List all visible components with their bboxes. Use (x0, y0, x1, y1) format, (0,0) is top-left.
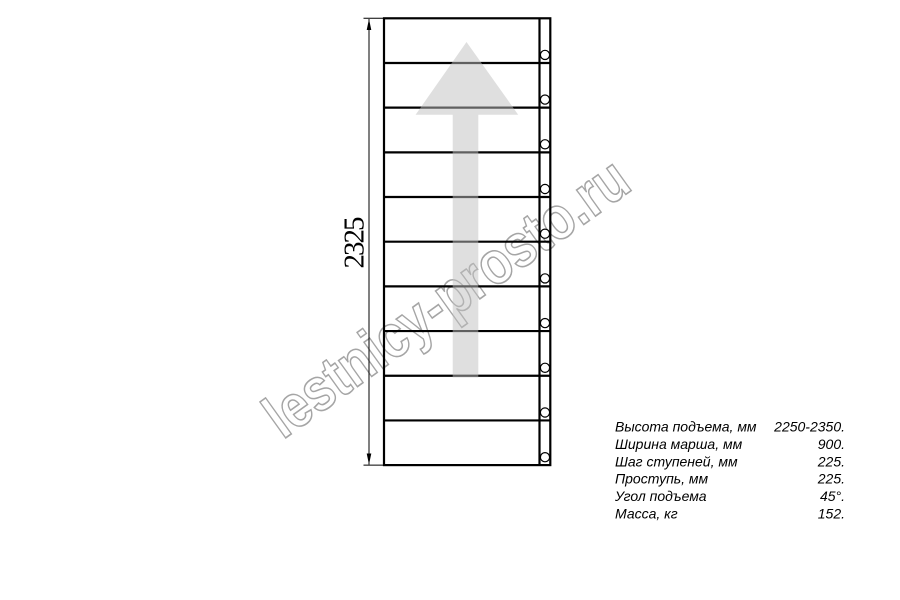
svg-text:225.: 225. (817, 453, 845, 469)
svg-text:900.: 900. (818, 436, 845, 452)
svg-text:Ширина марша, мм: Ширина марша, мм (615, 436, 743, 452)
svg-text:Проступь, мм: Проступь, мм (615, 471, 709, 487)
svg-text:Угол подъема: Угол подъема (614, 488, 707, 504)
svg-text:2325: 2325 (338, 217, 370, 269)
svg-text:2250-2350.: 2250-2350. (773, 419, 845, 435)
svg-text:45°.: 45°. (820, 488, 845, 504)
svg-text:Масса, кг: Масса, кг (615, 505, 678, 521)
svg-text:Высота подъема, мм: Высота подъема, мм (615, 419, 757, 435)
svg-text:152.: 152. (818, 505, 845, 521)
svg-text:Шаг ступеней, мм: Шаг ступеней, мм (615, 453, 738, 469)
svg-text:lestnicy-prosto.ru: lestnicy-prosto.ru (251, 144, 642, 451)
svg-text:225.: 225. (817, 471, 845, 487)
